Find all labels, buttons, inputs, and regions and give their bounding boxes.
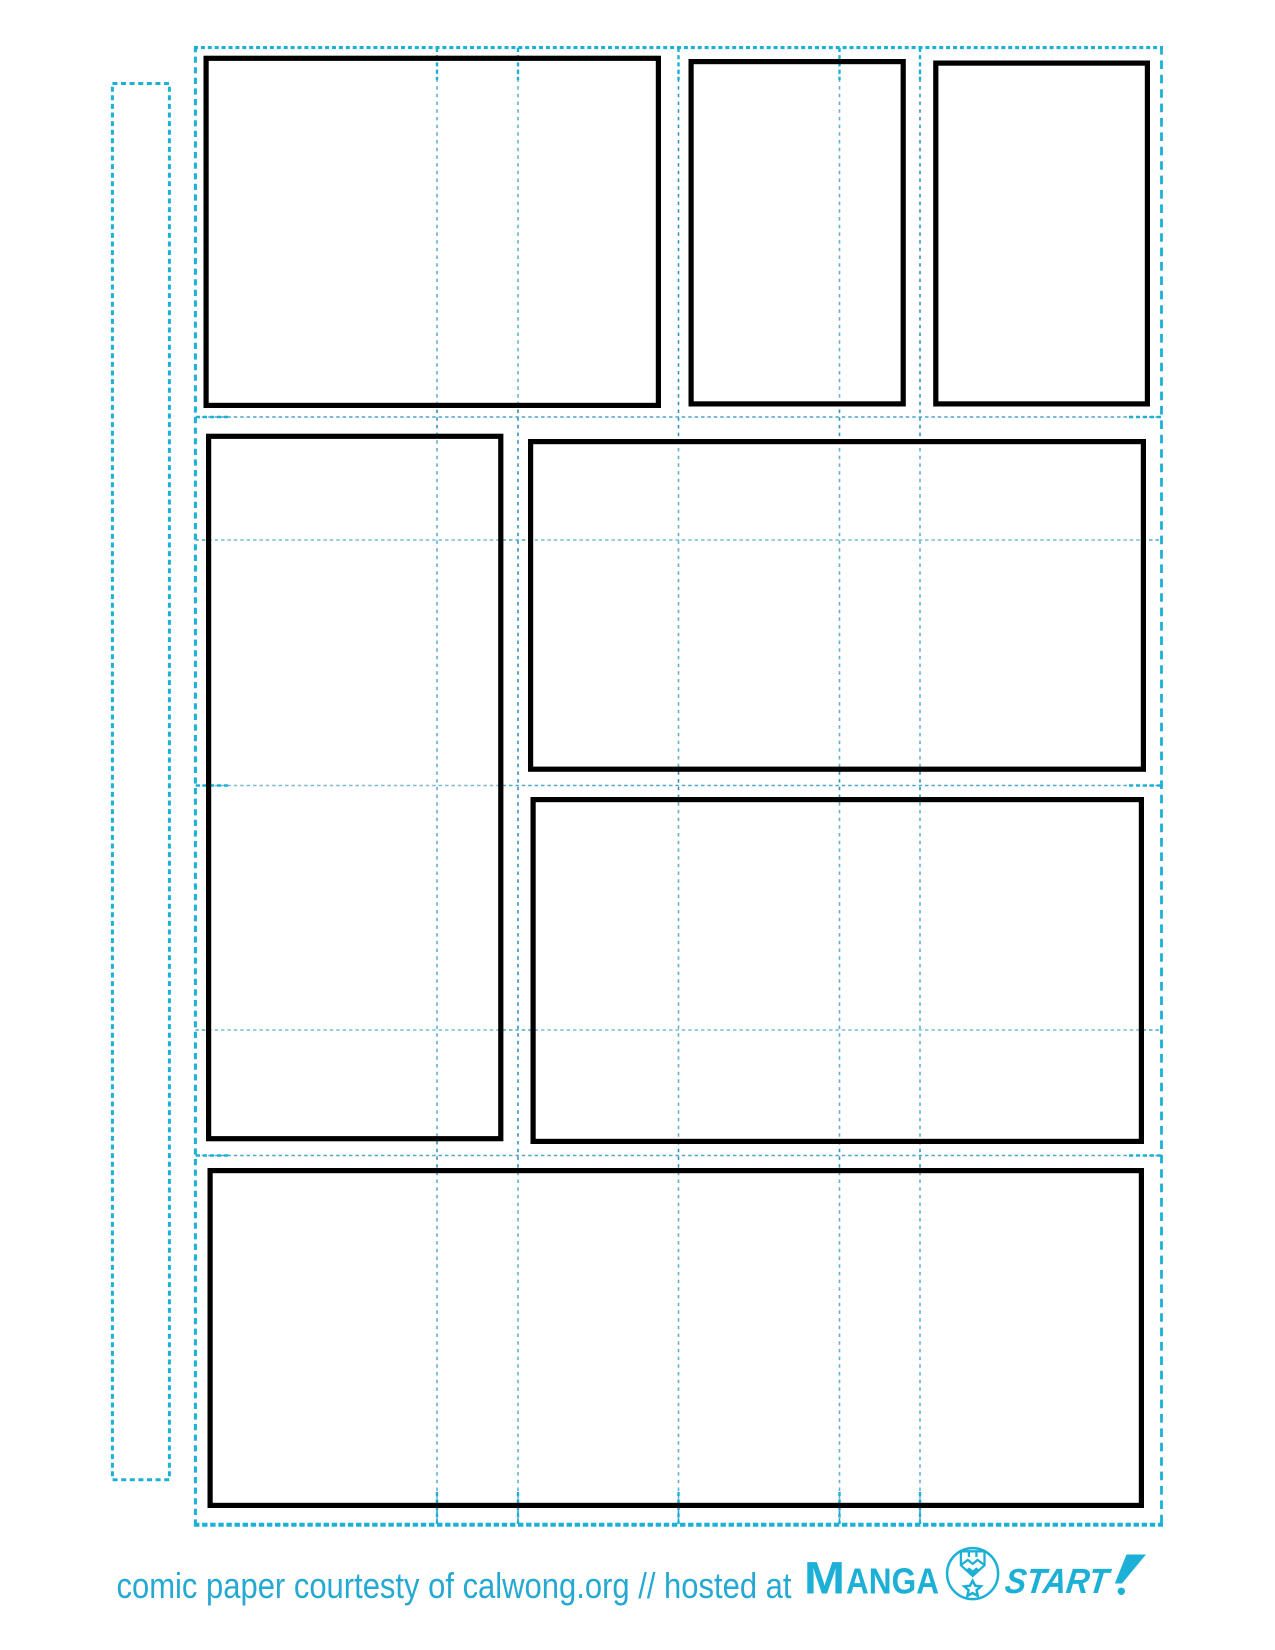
svg-text:ANGA: ANGA [846,1561,939,1602]
svg-text:M: M [804,1553,845,1604]
svg-text:START: START [1003,1562,1113,1601]
svg-text:comic paper courtesty of calwo: comic paper courtesty of calwong.org // … [117,1565,792,1606]
